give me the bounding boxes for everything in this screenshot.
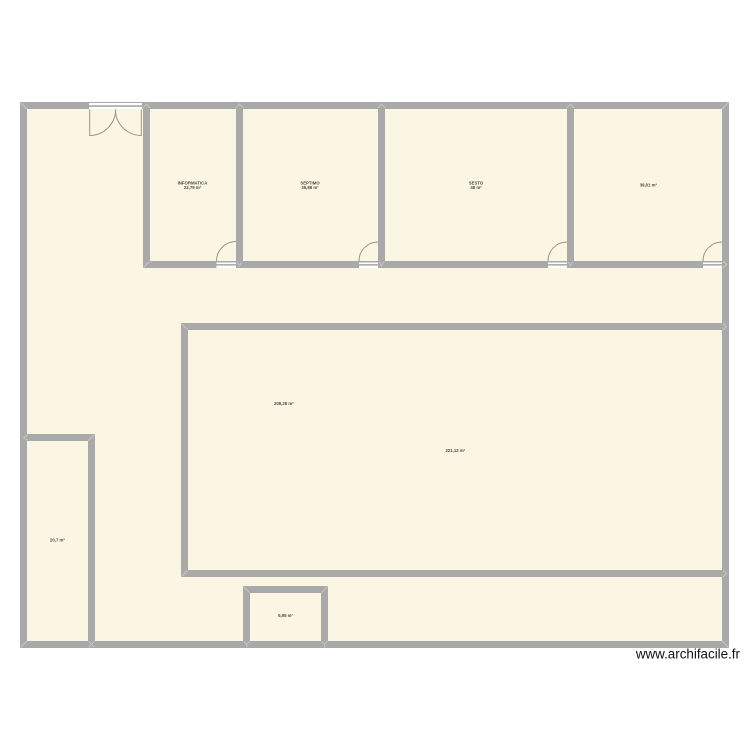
svg-text:5,95 m²: 5,95 m² bbox=[278, 613, 293, 618]
svg-text:www.archifacile.fr: www.archifacile.fr bbox=[635, 647, 741, 662]
svg-text:20,7 m²: 20,7 m² bbox=[50, 537, 65, 542]
svg-text:221,12 m²: 221,12 m² bbox=[446, 448, 466, 453]
svg-text:48 m²: 48 m² bbox=[470, 185, 482, 190]
svg-text:208,28 m²: 208,28 m² bbox=[274, 401, 294, 406]
svg-text:22,79 m²: 22,79 m² bbox=[184, 185, 202, 190]
svg-text:35,88 m²: 35,88 m² bbox=[301, 185, 319, 190]
svg-text:39,01 m²: 39,01 m² bbox=[640, 183, 658, 188]
